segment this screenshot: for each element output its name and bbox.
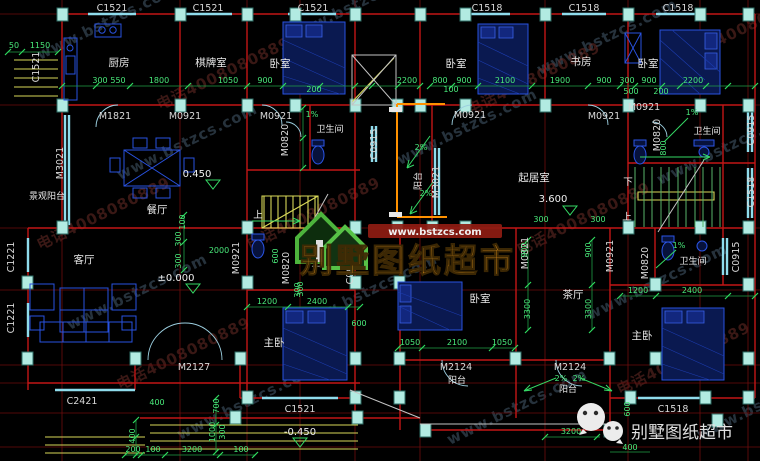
room-label-sitting: 起居室 [518,171,550,184]
dim-text: 300 [92,76,107,85]
dim-text: 100 [233,445,248,454]
window-label: C1521 [193,3,224,14]
room-label-balcony: 阳台 [412,172,424,190]
dim-text: 100 [443,85,458,94]
dim-text: 2200 [683,76,703,85]
room-label-chess-room: 棋牌室 [195,56,227,69]
room-label-living: 客厅 [74,253,95,266]
elevation-label: ±0.000 [157,273,194,284]
dim-text: 200 [125,445,140,454]
wechat-icon-eye [594,411,598,415]
dim-text: 300 [590,215,605,224]
dim-text: 1050 [218,76,238,85]
dim-text: 100 [178,214,187,229]
slope-label: 2% [415,143,428,152]
window-label: C1521 [285,404,316,415]
room-label-view-balcony: 景观阳台 [29,190,65,202]
dim-text: 300 [533,215,548,224]
door-label: M0921 [169,111,201,122]
floor-plan-screenshot: www.bstzcs.com www.bstzcs.com www.bstzcs… [0,0,760,461]
dim-text: 3300 [523,299,532,319]
sink-icon [697,241,707,251]
room-label-bathroom: 卫生间 [679,255,706,267]
dim-text: 1900 [550,76,570,85]
dim-text: 700 [212,398,221,413]
window-label: C1521 [31,52,42,83]
room-label-bedroom: 卧室 [638,57,659,70]
floor-plan-image: www.bstzcs.com www.bstzcs.com www.bstzcs… [0,0,760,461]
dim-text: 800 [659,140,668,155]
room-label-master: 主卧 [632,329,653,342]
dim-text: 500 [623,87,638,96]
door-label: M0820 [281,252,292,284]
room-label-study: 书房 [571,55,592,68]
logo-brand-text: 别墅图纸超市 [300,241,516,280]
dim-text: 300 [174,253,183,268]
dim-text: 600 [351,319,366,328]
dim-text: 900 [456,76,471,85]
toilet-icon [252,240,264,258]
dim-text: 1000 [208,422,217,442]
window-label: C0915 [731,242,742,273]
dim-text: 900 [520,242,529,257]
section-mark [389,107,402,112]
dim-text: 3200 [561,427,581,436]
window-label: C1518 [746,177,757,208]
elevation-label: -0.450 [284,427,316,438]
dim-text: 1200 [257,297,277,306]
room-label-bedroom: 卧室 [446,57,467,70]
window-label: C0915 [746,115,757,146]
dim-text: 900 [584,242,593,257]
room-label-tea-room: 茶厅 [563,288,584,301]
toilet-icon [312,146,324,164]
door-label: M2124 [440,362,472,373]
dim-text: 400 [149,398,164,407]
slope-label: 2% [555,374,568,383]
stair-up-mark: 上 [253,210,263,221]
wechat-icon [577,403,605,431]
dim-text: 50 [9,41,19,50]
slope-label: 1% [686,108,699,117]
window-label: C1518 [569,3,600,14]
room-label-bedroom: 卧室 [470,292,491,305]
door-label: M0921 [454,110,486,121]
door-label: M0921 [231,242,242,274]
door-label: M1821 [99,111,131,122]
door-label: M0921 [588,111,620,122]
dim-text: 300 [218,424,227,439]
stair-down-mark: 下 [623,177,633,188]
toilet-icon [634,146,646,164]
wechat-icon-eye [607,426,611,430]
dim-text: 300 [619,76,634,85]
slope-label: 1% [673,241,686,250]
window-label: C1518 [663,3,694,14]
dim-text: 1050 [400,338,420,347]
dim-text: 2000 [209,246,229,255]
wechat-icon-eye [615,426,619,430]
window-label: C1521 [298,3,329,14]
room-label-bedroom: 卧室 [270,57,291,70]
dim-text: 400 [622,443,637,452]
door-label: M0921 [260,111,292,122]
window-label: C1521 [97,3,128,14]
window-label: C1518 [658,404,689,415]
door-label: M3021 [431,166,442,198]
dim-text: 3300 [584,299,593,319]
dim-text: 3200 [182,445,202,454]
room-label-balcony: 阳台 [448,374,466,386]
slope-label: 2% [420,189,433,198]
door-label: M0921 [605,240,616,272]
door-label: M0820 [640,247,651,279]
elevation-label: 3.600 [539,194,568,205]
dim-text: 900 [641,76,656,85]
dim-text: 800 [432,76,447,85]
dim-text: 2100 [495,76,515,85]
slope-label: 1% [306,110,319,119]
room-label-bathroom: 卫生间 [693,125,720,137]
dim-text: 1200 [628,286,648,295]
window-label: C2421 [67,396,98,407]
dim-text: 300 [296,281,305,296]
door-label: M2124 [554,362,586,373]
door-label: M0921 [628,102,660,113]
dim-text: 1150 [30,41,50,50]
door-label: M0820 [280,124,291,156]
dim-text: 900 [596,76,611,85]
wechat-icon-eye [583,411,587,415]
window-label: C1221 [6,242,17,273]
stair-up-mark: 上 [622,212,632,223]
room-label-master: 主卧 [264,336,285,349]
window-label: C1221 [6,303,17,334]
door-label: M2127 [178,362,210,373]
dim-text: 100 [145,445,160,454]
window-label: C1518 [472,3,503,14]
wechat-icon [603,421,623,441]
door-label: M3021 [55,147,66,179]
room-label-dining: 餐厅 [147,203,168,216]
dim-text: 2400 [682,286,702,295]
dim-text: 550 [110,76,125,85]
dim-text: 600 [271,248,280,263]
dim-text: 300 [174,231,183,246]
dim-text: 2100 [447,338,467,347]
logo-url-text: www.bstzcs.com [388,227,481,238]
room-label-balcony: 阳台 [559,383,577,395]
section-mark [389,212,402,217]
dim-text: 2400 [307,297,327,306]
footer-brand-text: 别墅图纸超市 [631,423,733,443]
dim-text: 900 [257,76,272,85]
room-label-bathroom: 卫生间 [316,123,343,135]
room-label-kitchen: 厨房 [109,56,130,69]
slope-label: 2% [573,374,586,383]
elevation-label: 0.450 [183,169,212,180]
dim-text: 1050 [492,338,512,347]
dim-text: 600 [623,401,632,416]
dim-text: 200 [306,85,321,94]
dim-text: 2200 [397,76,417,85]
dim-text: 200 [653,87,668,96]
dim-text: 1800 [149,76,169,85]
window-label: C0915 [369,129,380,160]
dim-text: 400 [128,428,137,443]
